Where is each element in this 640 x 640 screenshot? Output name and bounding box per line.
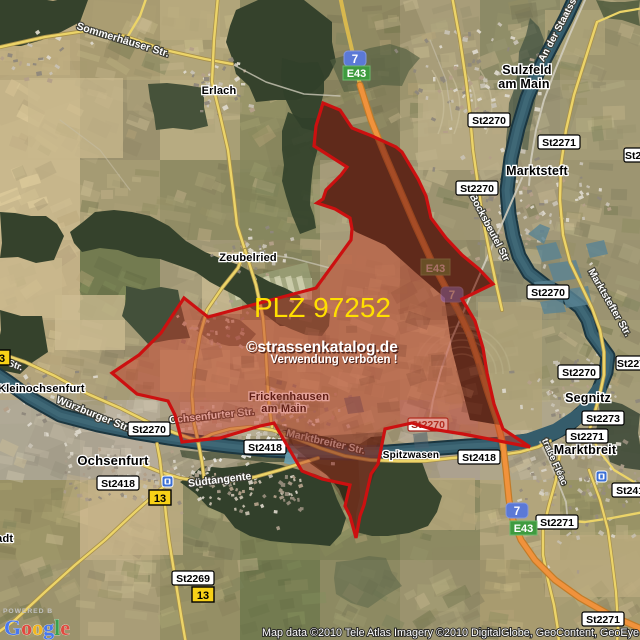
svg-text:7: 7 (352, 54, 358, 66)
svg-text:13: 13 (197, 590, 209, 602)
svg-text:Sulzfeld: Sulzfeld (502, 63, 552, 77)
svg-text:St2418: St2418 (101, 478, 135, 490)
svg-text:Spitzwasen: Spitzwasen (383, 450, 439, 461)
svg-text:St227: St227 (617, 358, 640, 370)
svg-text:Ochsenfurt: Ochsenfurt (77, 453, 149, 468)
svg-text:Kleinochsenfurt: Kleinochsenfurt (0, 383, 85, 395)
svg-text:Erlach: Erlach (202, 85, 237, 97)
svg-text:St2418: St2418 (462, 452, 496, 464)
svg-text:stadt: stadt (0, 533, 13, 545)
svg-text:13: 13 (0, 353, 5, 365)
svg-text:St2270: St2270 (460, 183, 494, 195)
svg-text:Segnitz: Segnitz (565, 391, 611, 405)
svg-text:St2270: St2270 (472, 115, 506, 127)
svg-text:St2418: St2418 (616, 485, 640, 497)
svg-text:St2271: St2271 (542, 137, 576, 149)
svg-text:Zeubelried: Zeubelried (219, 252, 277, 264)
svg-text:Marktbreit: Marktbreit (554, 443, 617, 457)
svg-text:Map data ©2010 Tele Atlas Ima: Map data ©2010 Tele Atlas Imagery ©2010 … (262, 627, 639, 639)
svg-text:PLZ 97252: PLZ 97252 (254, 292, 391, 323)
svg-text:Marktsteft: Marktsteft (506, 164, 568, 178)
svg-text:am Main: am Main (498, 77, 549, 91)
svg-text:Verwendung verboten !: Verwendung verboten ! (270, 354, 397, 366)
svg-text:13: 13 (154, 493, 166, 505)
svg-text:St2271: St2271 (540, 517, 574, 529)
svg-text:St2273: St2273 (586, 413, 620, 425)
svg-text:Google: Google (4, 615, 70, 640)
svg-text:St2270: St2270 (562, 367, 596, 379)
svg-text:St2271: St2271 (586, 614, 620, 626)
svg-text:St227: St227 (625, 150, 640, 162)
svg-text:E43: E43 (514, 523, 534, 535)
svg-text:St2269: St2269 (176, 573, 210, 585)
svg-text:E43: E43 (347, 68, 367, 80)
svg-text:St2271: St2271 (570, 431, 604, 443)
svg-text:St2418: St2418 (248, 442, 282, 454)
svg-text:St2270: St2270 (531, 287, 565, 299)
svg-text:St2270: St2270 (132, 424, 166, 436)
svg-text:7: 7 (514, 506, 520, 518)
svg-text:POWERED B: POWERED B (3, 608, 53, 615)
